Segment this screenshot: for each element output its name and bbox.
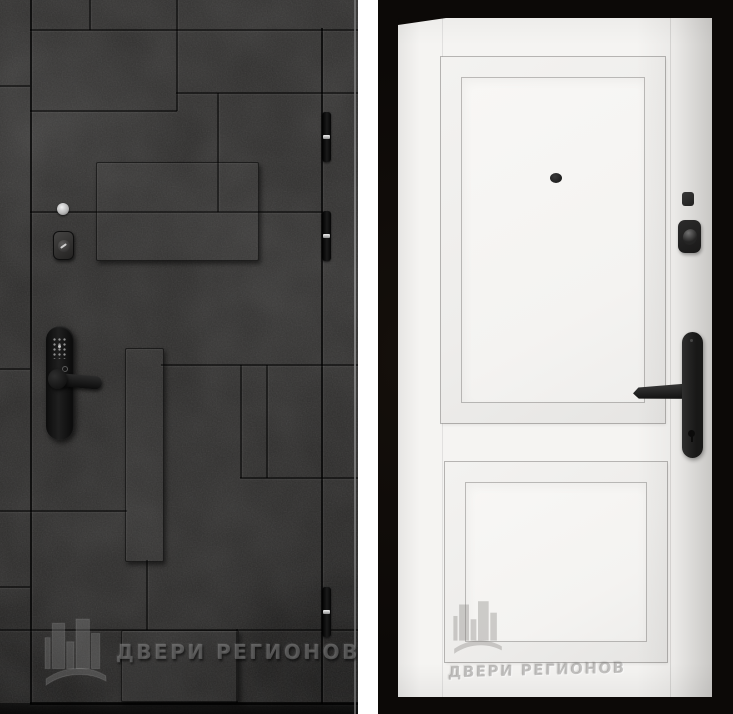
door-hinge xyxy=(322,112,331,162)
keyhole-slot xyxy=(691,436,693,442)
keypad-dots xyxy=(53,338,68,359)
raised-panel-top xyxy=(441,57,665,423)
screw xyxy=(690,339,693,342)
cylinder-core xyxy=(58,240,70,252)
hinge-pin xyxy=(323,610,330,614)
buildings-skyline-icon xyxy=(448,593,508,657)
seam-line xyxy=(0,510,127,512)
raised-panel xyxy=(125,348,164,562)
thumbturn-lock xyxy=(678,220,701,253)
seam-line xyxy=(146,560,148,630)
photo-corner-shadow xyxy=(398,18,446,25)
door-hinge xyxy=(322,587,331,637)
seam-line xyxy=(266,365,268,478)
door-leaf: ДВЕРИ РЕГИОНОВ xyxy=(398,18,712,697)
seam-line xyxy=(89,0,91,30)
raised-panel xyxy=(121,630,239,702)
photo-divider xyxy=(358,0,378,714)
casing-highlight-edge xyxy=(354,0,356,714)
keypad-active-dot xyxy=(58,345,61,348)
seam-line xyxy=(176,92,358,94)
seam-line xyxy=(30,110,177,112)
seam-line xyxy=(0,586,30,588)
hinge-pin xyxy=(323,135,330,139)
watermark-text: ДВЕРИ РЕГИОНОВ xyxy=(448,659,626,682)
thumbturn-knob xyxy=(680,227,699,247)
door-edge-seam xyxy=(30,0,32,704)
dark-door-photo: ДВЕРИ РЕГИОНОВ xyxy=(0,0,358,714)
peephole xyxy=(57,203,69,215)
keyhole-slot xyxy=(60,243,67,249)
peephole xyxy=(550,173,562,183)
seam-line xyxy=(240,365,242,478)
white-door-photo: ДВЕРИ РЕГИОНОВ xyxy=(378,0,733,714)
floor-shadow xyxy=(0,703,358,714)
door-product-collage: ДВЕРИ РЕГИОНОВ xyxy=(0,0,733,714)
hinge-pin xyxy=(323,234,330,238)
raised-panel xyxy=(96,162,259,261)
lock-cylinder xyxy=(53,231,74,260)
door-top-seam xyxy=(30,29,358,31)
seam-line xyxy=(240,477,358,479)
seam-line xyxy=(176,0,178,111)
seam-line xyxy=(161,364,358,366)
night-latch xyxy=(682,192,694,206)
brand-watermark: ДВЕРИ РЕГИОНОВ xyxy=(448,593,626,679)
door-hinge xyxy=(322,211,331,261)
seam-line xyxy=(0,85,30,87)
handle-backplate xyxy=(682,332,703,458)
leaf-edge-seam xyxy=(670,18,671,697)
handle-hub xyxy=(48,369,67,389)
seam-line xyxy=(0,368,30,370)
panel-field xyxy=(462,78,644,402)
